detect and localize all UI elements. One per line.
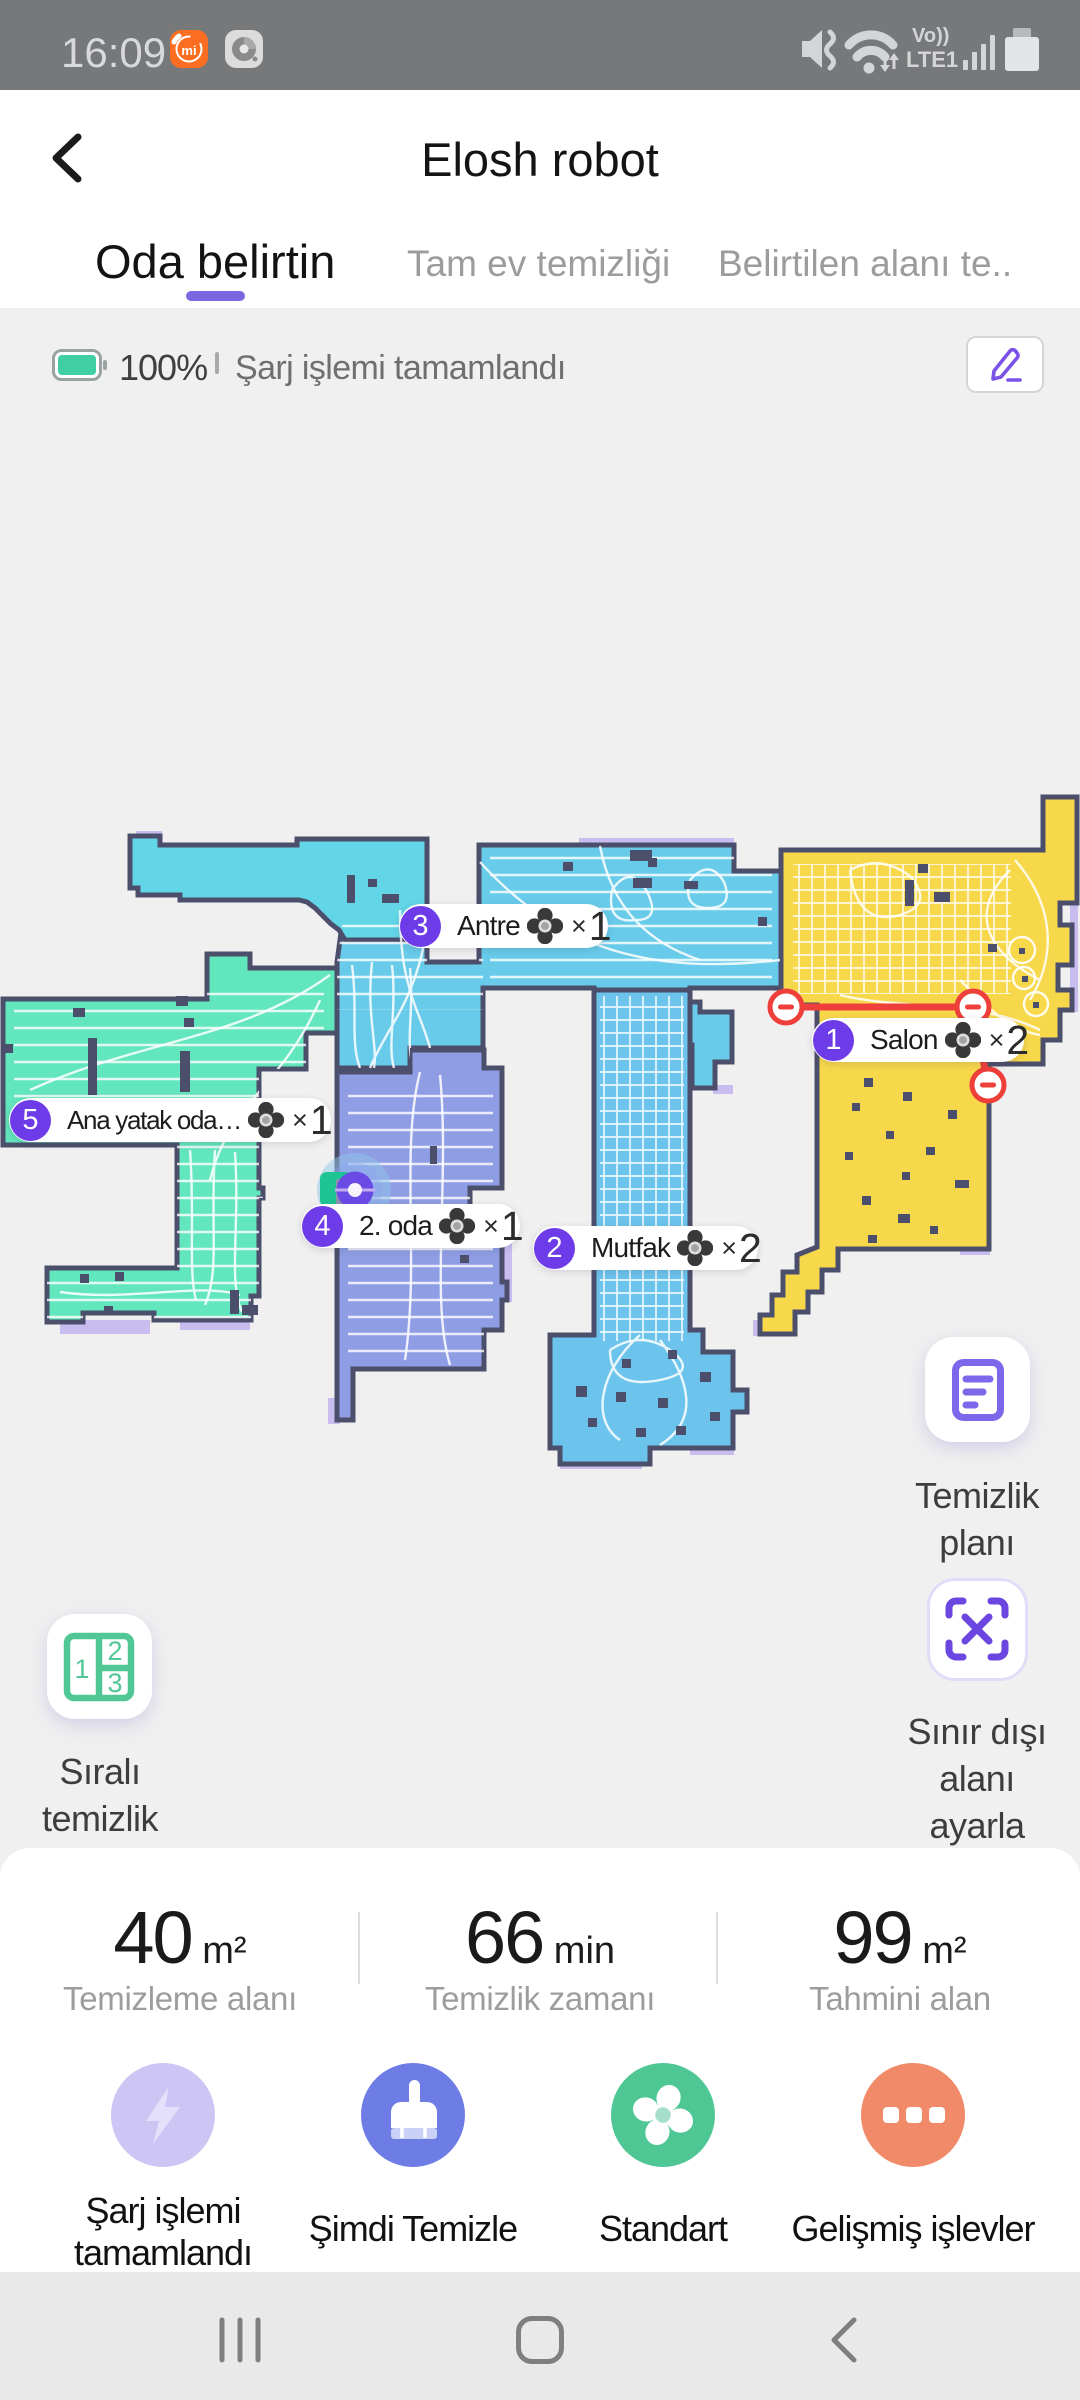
- svg-text:3: 3: [107, 1668, 122, 1698]
- svg-text:2: 2: [107, 1636, 122, 1666]
- svg-text:LTE1: LTE1: [906, 47, 958, 72]
- svg-text:1: 1: [74, 1654, 89, 1684]
- svg-text:mi: mi: [181, 43, 196, 58]
- svg-text:Vo)): Vo)): [912, 25, 949, 47]
